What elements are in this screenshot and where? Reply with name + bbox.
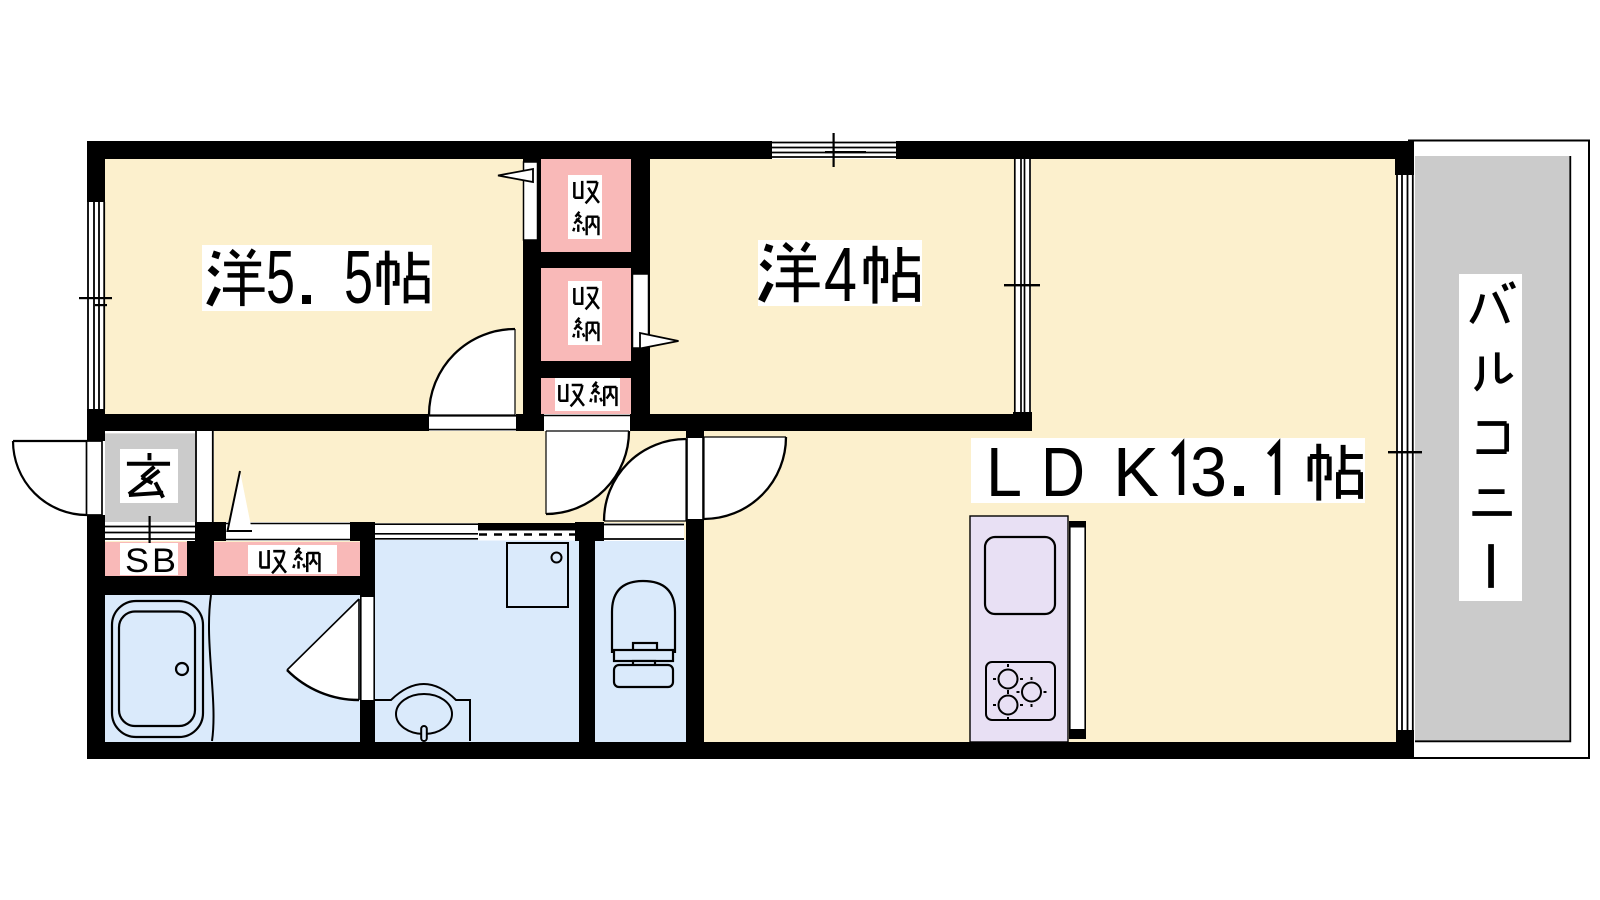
svg-text:5: 5 xyxy=(344,235,373,319)
svg-text:D: D xyxy=(1041,433,1085,511)
svg-text:4: 4 xyxy=(824,232,857,318)
svg-text:S: S xyxy=(125,542,149,580)
svg-text:L: L xyxy=(986,433,1022,511)
svg-text:B: B xyxy=(152,542,176,580)
svg-text:5: 5 xyxy=(266,235,295,319)
svg-text:K: K xyxy=(1113,433,1159,511)
svg-text:3: 3 xyxy=(1190,433,1227,511)
